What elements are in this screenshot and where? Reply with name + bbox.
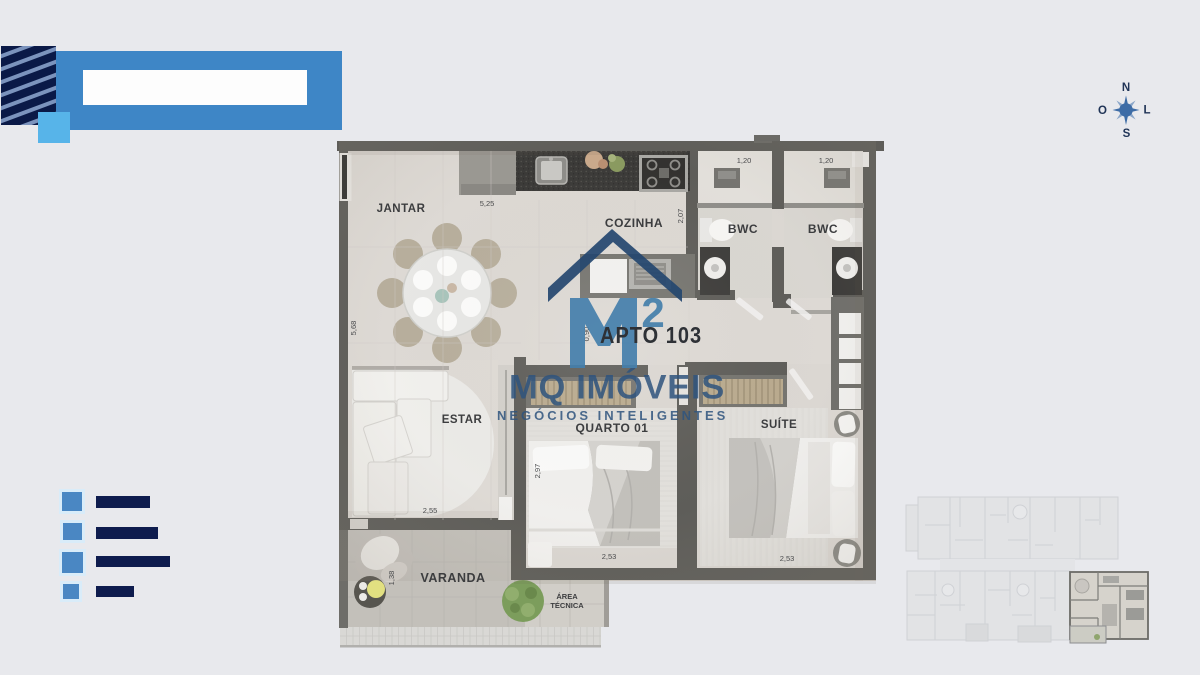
svg-text:2,53: 2,53 [602, 552, 617, 561]
svg-text:5,25: 5,25 [480, 199, 495, 208]
svg-text:ÁREA: ÁREA [556, 592, 578, 601]
svg-text:APTO 103: APTO 103 [600, 321, 702, 348]
svg-text:JANTAR: JANTAR [377, 203, 426, 215]
svg-text:VARANDA: VARANDA [420, 571, 485, 585]
svg-text:2,97: 2,97 [533, 464, 542, 479]
svg-text:1,20: 1,20 [819, 156, 834, 165]
svg-text:5,68: 5,68 [349, 321, 358, 336]
svg-text:MQ IMÓVEIS: MQ IMÓVEIS [509, 367, 725, 407]
svg-text:N: N [1122, 82, 1130, 94]
svg-text:1,38: 1,38 [387, 571, 396, 586]
svg-text:BWC: BWC [808, 222, 838, 236]
svg-text:ESTAR: ESTAR [442, 414, 483, 426]
svg-text:1,20: 1,20 [737, 156, 752, 165]
svg-text:L: L [1143, 105, 1150, 117]
svg-text:2,53: 2,53 [780, 554, 795, 563]
svg-text:O: O [1098, 105, 1107, 117]
svg-text:S: S [1123, 128, 1131, 140]
svg-text:2,55: 2,55 [423, 506, 438, 515]
svg-text:NEGÓCIOS INTELIGENTES: NEGÓCIOS INTELIGENTES [497, 408, 728, 423]
svg-text:2,07: 2,07 [676, 209, 685, 224]
svg-text:TÉCNICA: TÉCNICA [550, 601, 584, 610]
